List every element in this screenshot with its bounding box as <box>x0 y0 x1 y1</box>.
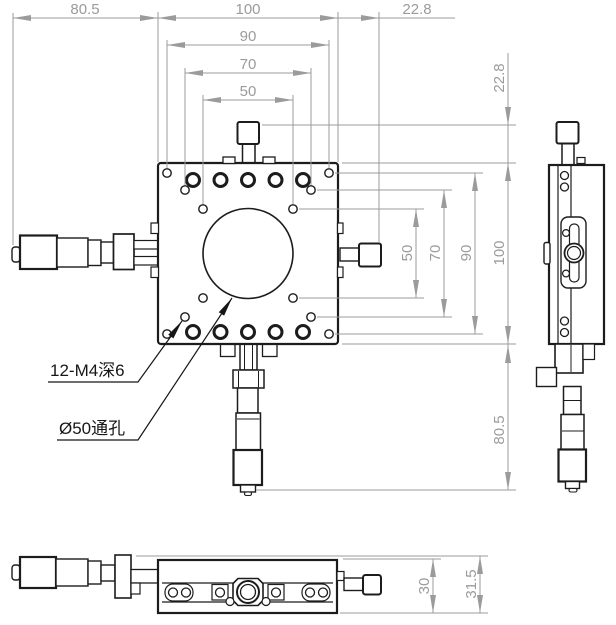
dim-right-80-5: 80.5 <box>491 415 508 444</box>
front-bottom-clamp-right <box>263 344 278 357</box>
front-top-tab <box>223 157 235 164</box>
annotation-texts: 12-M4深6 Ø50通孔 <box>50 361 125 438</box>
bottom-hole <box>262 598 270 606</box>
label-through-hole: Ø50通孔 <box>59 419 125 438</box>
dim-top-80-5: 80.5 <box>70 1 99 18</box>
bottom-right-lock-knob <box>363 575 381 595</box>
technical-drawing-page: 80.5 100 22.8 90 70 50 22.8 50 70 90 100… <box>0 0 616 625</box>
side-bottom-flange <box>537 368 557 387</box>
side-bottom-knob <box>559 450 587 482</box>
front-right-lock-shaft <box>340 248 360 261</box>
front-left-micrometer-knob <box>20 236 57 270</box>
bottom-hole <box>226 598 234 606</box>
dim-bottom-30: 30 <box>416 578 433 595</box>
bottom-hole <box>169 588 178 597</box>
dim-right-22-8: 22.8 <box>491 63 508 92</box>
front-top-lock-knob <box>238 122 260 144</box>
front-left-micrometer-section <box>88 240 101 266</box>
front-left-micrometer-bracket <box>114 234 135 270</box>
bottom-hole <box>272 588 281 597</box>
front-bottom-tip <box>245 492 252 496</box>
dim-top-50: 50 <box>240 83 257 100</box>
side-top-tab <box>577 158 585 164</box>
front-left-tab <box>151 223 159 234</box>
bottom-hole <box>319 588 328 597</box>
bottom-view <box>12 555 381 613</box>
front-right-tab <box>338 223 344 234</box>
dim-top-100: 100 <box>235 1 260 18</box>
xy-stage-drawing: 80.5 100 22.8 90 70 50 22.8 50 70 90 100… <box>0 0 616 625</box>
side-top-shaft <box>562 144 574 166</box>
side-bottom-cap <box>566 482 580 489</box>
front-bottom-clamp-left <box>221 344 236 357</box>
bottom-right-shaft <box>344 578 363 591</box>
bottom-hole <box>306 588 315 597</box>
dim-right-70: 70 <box>427 245 444 262</box>
side-view <box>537 122 605 492</box>
side-hole <box>561 183 569 191</box>
side-hole <box>561 172 569 180</box>
side-small-hole <box>563 270 570 277</box>
label-tapped-holes: 12-M4深6 <box>50 361 125 380</box>
side-hole <box>561 317 569 325</box>
side-center-hole-inner <box>568 247 581 260</box>
dim-right-50: 50 <box>399 245 416 262</box>
dim-right-100: 100 <box>491 240 508 265</box>
bottom-hole <box>216 588 225 597</box>
dim-bottom-31-5: 31.5 <box>463 569 480 598</box>
bottom-right-tab <box>337 572 344 581</box>
front-bottom-knob <box>234 450 263 485</box>
side-bottom-step <box>583 344 595 360</box>
side-lock-tip <box>544 243 550 265</box>
front-bottom-shaft <box>238 388 259 413</box>
center-through-hole <box>203 209 293 299</box>
side-top-knob <box>557 122 579 144</box>
side-bottom-bracket <box>555 344 583 373</box>
bottom-left-micrometer-section <box>88 561 101 584</box>
front-left-micrometer-cap <box>12 247 20 262</box>
front-top-lock-shaft <box>243 143 256 163</box>
front-bottom-block <box>233 370 264 388</box>
side-hole <box>561 329 569 337</box>
bottom-left-micrometer-stem <box>101 565 115 581</box>
front-bottom-column <box>240 344 257 370</box>
front-right-lock-knob <box>359 244 381 267</box>
front-right-tab <box>338 267 344 278</box>
bottom-left-bracket <box>115 555 131 598</box>
dim-top-22-8: 22.8 <box>402 1 431 18</box>
front-left-micrometer-barrel <box>57 238 88 267</box>
bottom-hole <box>182 588 191 597</box>
dim-right-90: 90 <box>458 245 475 262</box>
bottom-left-micrometer-knob <box>20 557 56 588</box>
dim-top-90: 90 <box>240 28 257 45</box>
side-bottom-tip <box>569 489 577 493</box>
bottom-left-arm <box>131 570 158 584</box>
front-left-tab <box>151 267 159 278</box>
bottom-left-micrometer-barrel <box>56 559 88 586</box>
front-left-micrometer-stem <box>101 242 114 263</box>
bottom-center-hole-inner <box>241 585 256 600</box>
front-bottom-cap <box>241 485 256 492</box>
bottom-left-micrometer-cap <box>12 565 20 580</box>
front-left-prong-bottom <box>134 257 158 266</box>
side-bottom-barrel <box>561 415 584 450</box>
bottom-left-step <box>131 583 140 594</box>
front-left-prong-top <box>134 241 158 250</box>
side-small-hole <box>563 230 570 237</box>
dim-top-70: 70 <box>240 56 257 73</box>
front-top-tab <box>263 157 275 164</box>
